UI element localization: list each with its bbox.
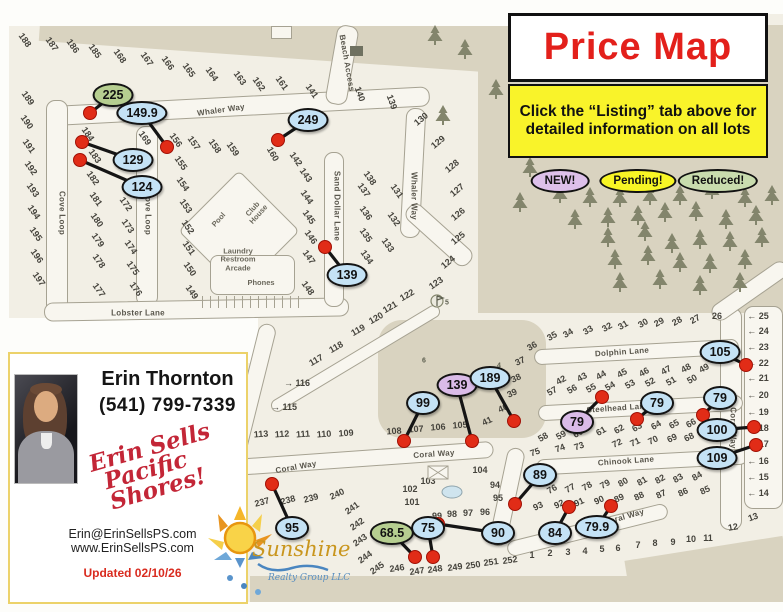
page-margin-top2 xyxy=(0,0,783,13)
price-bubble[interactable]: 189 xyxy=(470,366,511,390)
price-bubble[interactable]: 99 xyxy=(406,391,440,415)
lot-number: 2 xyxy=(547,548,552,558)
phones-label: Phones xyxy=(247,279,274,287)
lot-number: ← 24 xyxy=(747,326,769,336)
lot-number: 105 xyxy=(452,419,468,430)
price-bubble[interactable]: 139 xyxy=(327,263,368,287)
price-bubble[interactable]: 79.9 xyxy=(575,515,619,539)
lot-number: 249 xyxy=(447,561,463,573)
price-bubble[interactable]: 75 xyxy=(411,516,445,540)
price-bubble[interactable]: 129 xyxy=(113,148,154,172)
laundry-label: Laundry Restroom Arcade xyxy=(220,248,255,273)
listing-dot[interactable] xyxy=(466,435,479,448)
lot-number: 7 xyxy=(635,540,640,550)
price-bubble[interactable]: 68.5 xyxy=(370,521,414,545)
sunshine-logo: Sunshine Realty Group LLC xyxy=(200,498,352,608)
lot-number: 103 xyxy=(420,476,435,486)
lot-number: 108 xyxy=(386,425,402,436)
map-marker: 6 xyxy=(422,358,426,365)
listing-dot[interactable] xyxy=(409,551,422,564)
price-bubble[interactable]: 79 xyxy=(703,386,737,410)
street-label: Lobster Lane xyxy=(111,309,165,318)
price-bubble[interactable]: 149.9 xyxy=(116,101,167,125)
lot-number: ← 23 xyxy=(747,342,769,352)
lot-number: 3 xyxy=(565,547,570,557)
listing-dot[interactable] xyxy=(398,435,411,448)
legend-reduced-badge: Reduced! xyxy=(678,169,758,193)
lot-number: ← 21 xyxy=(747,373,769,383)
lot-number: → 116 xyxy=(284,378,310,388)
legend-pending-badge: Pending! xyxy=(599,169,676,193)
lot-number: 251 xyxy=(483,556,499,568)
lot-number: 4 xyxy=(582,546,587,556)
listing-instruction-box: Click the “Listing” tab above for detail… xyxy=(508,84,768,158)
lot-number: 8 xyxy=(652,538,657,548)
street-label: Cove Loop xyxy=(58,191,67,235)
listing-dot[interactable] xyxy=(563,501,576,514)
listing-dot[interactable] xyxy=(509,498,522,511)
listing-dot[interactable] xyxy=(631,413,644,426)
lot-number: ← 19 xyxy=(747,407,769,417)
lot-number: ← 14 xyxy=(747,488,769,498)
street-label: Whaler Way xyxy=(410,172,419,220)
lot-number: ← 16 xyxy=(747,456,769,466)
listing-dot[interactable] xyxy=(508,415,521,428)
lot-number: 247 xyxy=(409,565,425,577)
listing-dot[interactable] xyxy=(750,439,763,452)
listing-dot[interactable] xyxy=(740,359,753,372)
lot-number: 250 xyxy=(465,559,481,571)
lot-number: 112 xyxy=(274,429,289,440)
listing-dot[interactable] xyxy=(427,551,440,564)
legend-new-badge: NEW! xyxy=(531,169,590,193)
listing-dot[interactable] xyxy=(74,154,87,167)
agent-name: Erin Thornton xyxy=(85,368,250,391)
lot-number: ← 15 xyxy=(747,472,769,482)
price-bubble[interactable]: 249 xyxy=(288,108,329,132)
lot-number: 109 xyxy=(338,427,354,438)
lot-number: 246 xyxy=(389,562,405,574)
lot-number: 11 xyxy=(703,533,713,543)
lot-number: 98 xyxy=(447,509,457,519)
lot-number: 96 xyxy=(480,507,490,517)
price-map-page: Pool Club House Laundry Restroom Arcade … xyxy=(0,0,783,612)
brokerage-name: Sunshine xyxy=(252,537,350,561)
listing-dot[interactable] xyxy=(266,478,279,491)
price-bubble[interactable]: 79 xyxy=(560,410,594,434)
listing-dot[interactable] xyxy=(319,241,332,254)
listing-dot[interactable] xyxy=(76,136,89,149)
parking-stripes xyxy=(202,296,304,308)
price-bubble[interactable]: 79 xyxy=(640,391,674,415)
lot-number: 10 xyxy=(686,534,696,544)
photo-shirt xyxy=(41,433,52,449)
listing-dot[interactable] xyxy=(596,391,609,404)
lot-number: 95 xyxy=(493,493,503,503)
lot-number: 107 xyxy=(408,423,424,434)
lot-number: 6 xyxy=(615,543,620,553)
agent-photo xyxy=(14,374,78,484)
lot-number: 102 xyxy=(402,484,417,494)
price-bubble[interactable]: 89 xyxy=(523,463,557,487)
beach-building xyxy=(271,26,292,39)
lot-number: 104 xyxy=(472,465,487,475)
lot-number: 26 xyxy=(712,311,722,321)
lot-number: 252 xyxy=(502,554,518,566)
listing-instruction-text: Click the “Listing” tab above for detail… xyxy=(510,103,766,140)
lot-number: ← 25 xyxy=(747,311,769,321)
lot-number: ← 20 xyxy=(747,390,769,400)
price-map-title-box: Price Map xyxy=(508,13,768,82)
listing-dot[interactable] xyxy=(84,107,97,120)
lot-number: 106 xyxy=(430,421,446,432)
price-bubble[interactable]: 84 xyxy=(538,521,572,545)
lot-number: 94 xyxy=(490,480,500,490)
lot-number: 110 xyxy=(316,429,331,440)
sun-icon xyxy=(225,523,255,553)
lot-number: 1 xyxy=(529,550,534,560)
price-bubble[interactable]: 105 xyxy=(700,340,741,364)
lot-number: 5 xyxy=(599,544,604,554)
lot-number: 111 xyxy=(296,429,311,440)
brokerage-subtitle: Realty Group LLC xyxy=(267,573,350,583)
map-marker: 5 xyxy=(445,300,449,307)
street-label: Sand Dollar Lane xyxy=(333,171,342,241)
price-bubble[interactable]: 90 xyxy=(481,521,515,545)
lot-number: 248 xyxy=(427,563,443,575)
listing-dot[interactable] xyxy=(272,134,285,147)
price-bubble[interactable]: 124 xyxy=(122,175,163,199)
price-bubble[interactable]: 100 xyxy=(697,418,738,442)
lot-number: 9 xyxy=(670,537,675,547)
lot-number: 101 xyxy=(404,497,419,507)
photo-face xyxy=(34,391,58,422)
price-map-title: Price Map xyxy=(544,26,733,69)
price-bubble[interactable]: 109 xyxy=(697,446,738,470)
lot-number: 12 xyxy=(727,521,739,533)
lot-number: 97 xyxy=(463,508,473,518)
listing-dot[interactable] xyxy=(748,421,761,434)
listing-dot[interactable] xyxy=(605,500,618,513)
lot-number: → 115 xyxy=(271,402,297,412)
listing-dot[interactable] xyxy=(161,141,174,154)
